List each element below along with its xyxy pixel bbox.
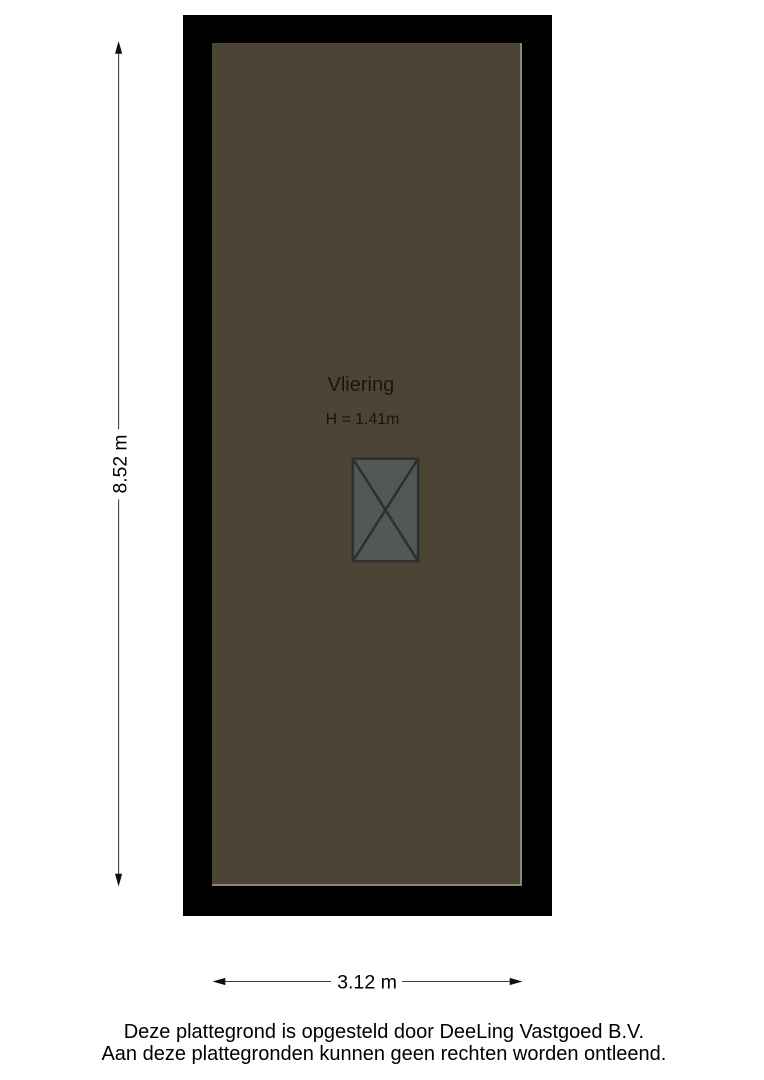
svg-text:3.12 m: 3.12 m [337,972,397,994]
svg-text:8.52 m: 8.52 m [111,435,132,494]
